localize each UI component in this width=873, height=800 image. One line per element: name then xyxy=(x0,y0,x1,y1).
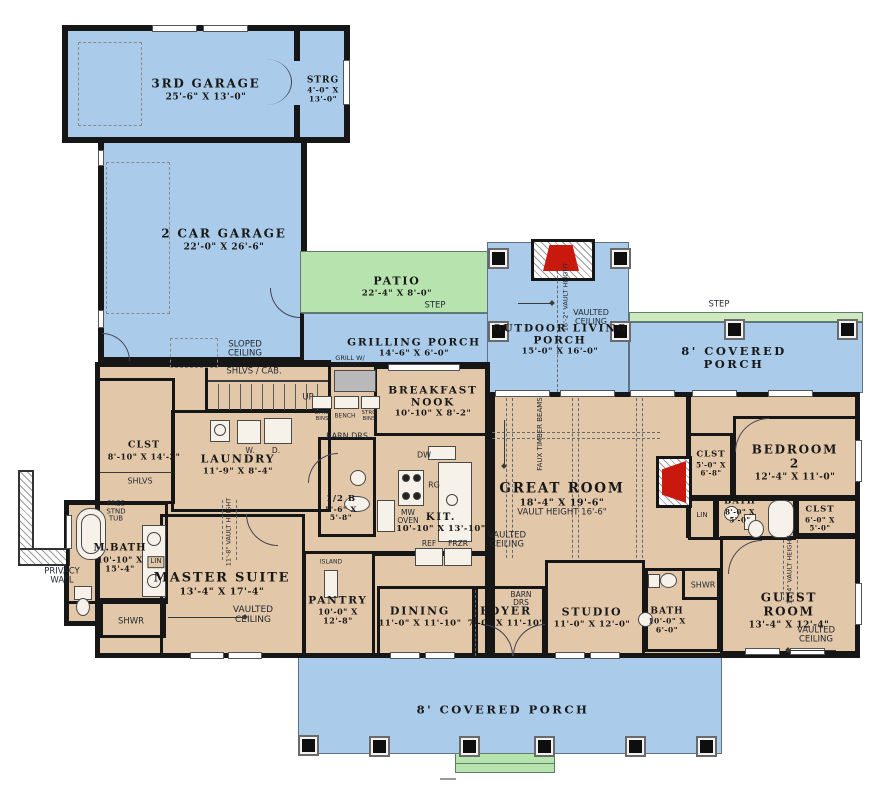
room-name: PANTRY xyxy=(308,594,367,606)
porch-column xyxy=(839,321,856,338)
attic-stair-dashes xyxy=(170,338,218,368)
room-name: PATIO xyxy=(373,275,420,288)
window xyxy=(388,364,460,371)
steps-bottom-line xyxy=(455,763,555,764)
burner xyxy=(402,474,410,482)
annotation-up: UP xyxy=(302,393,313,402)
room-name: GRILLING PORCH xyxy=(347,337,481,349)
privacy-wall-horizontal xyxy=(18,548,70,566)
window xyxy=(152,25,197,32)
porch-column xyxy=(627,738,644,755)
room-label-pantry: PANTRY 10'-0" X 12'-8" xyxy=(308,594,367,625)
porch-column xyxy=(536,738,553,755)
window xyxy=(768,390,813,397)
room-label-bedroom2-closet: CLST 5'-0" X 6'-8" xyxy=(696,451,726,478)
annotation-strg-bins: STRG BINS xyxy=(315,410,330,422)
room-label-hall-closet: CLST 6'-0" X 5'-0" xyxy=(805,506,835,533)
room-label-grilling-porch: GRILLING PORCH 14'-6" X 6'-0" xyxy=(347,337,481,360)
strg-partition-upper xyxy=(294,31,300,61)
room-name: BREAKFAST NOOK xyxy=(388,385,477,409)
room-name: LAUNDRY xyxy=(201,453,276,466)
room-label-covered-porch-right: 8' COVERED PORCH xyxy=(665,345,804,371)
annotation-barn-drs: BARN DRS xyxy=(510,591,531,608)
dishwasher xyxy=(428,446,456,460)
room-dims: 22'-0" X 26'-6" xyxy=(184,242,265,252)
porch-column xyxy=(490,250,507,267)
annotation-dryer: D. xyxy=(272,447,280,455)
storage-bin xyxy=(361,396,380,409)
porch-column xyxy=(371,738,388,755)
porch-column xyxy=(726,321,743,338)
window xyxy=(66,515,72,549)
annotation-shlvs: SHLVS xyxy=(127,478,152,487)
annotation-ref: REF xyxy=(422,540,436,548)
room-label-master-closet: CLST 8'-10" X 14'-2" xyxy=(108,440,181,461)
room-label-master-suite: MASTER SUITE 13'-4" X 17'-4" xyxy=(154,572,291,599)
room-dims: 4'-0" X 13'-0" xyxy=(307,87,339,104)
annotation-vault-height: 16'-2" VAULT HEIGHT xyxy=(562,263,569,331)
window xyxy=(745,648,780,655)
room-name: BATH xyxy=(724,498,756,508)
annotation-island: ISLAND xyxy=(320,560,342,567)
bed2-tub xyxy=(768,500,794,538)
room-dims: 5'-0" X 6'-8" xyxy=(696,461,726,477)
window xyxy=(555,652,585,659)
burner xyxy=(413,492,421,500)
master-vault-line xyxy=(222,500,223,560)
window xyxy=(630,390,675,397)
window xyxy=(390,652,420,659)
annotation-vaulted-ceiling: VAULTED CEILING xyxy=(797,627,835,646)
beam-line xyxy=(492,438,660,439)
room-dims: 11'-9" X 8'-4" xyxy=(203,467,273,477)
room-dims: 11'-0" X 11'-10" xyxy=(378,619,461,629)
beam-line xyxy=(578,398,579,558)
halfbath-sink xyxy=(350,470,366,486)
strg-partition-lower xyxy=(294,105,300,137)
room-dims: 13'-4" X 17'-4" xyxy=(180,588,265,599)
garage3-dashed-outline xyxy=(78,42,142,126)
room-name: STUDIO xyxy=(562,606,623,619)
annotation-frzr: FRZR xyxy=(448,540,468,548)
room-name: 2 CAR GARAGE xyxy=(161,227,286,241)
washer xyxy=(237,420,261,444)
beam-line xyxy=(642,398,643,558)
room-name: CLST xyxy=(805,506,834,516)
window xyxy=(343,60,350,105)
dim-line xyxy=(504,420,505,466)
room-dims: 6'-0" X 5'-0" xyxy=(805,516,835,532)
annotation-strg-bins: STRG BINS xyxy=(362,410,377,422)
floor-plan: 3RD GARAGE 25'-6" X 13'-0" STRG 4'-0" X … xyxy=(0,0,873,800)
room-dims: 11'-0" X 12'-0" xyxy=(554,620,631,630)
room-name: DINING xyxy=(390,605,450,618)
porch-column xyxy=(461,738,478,755)
annotation-mw-oven: MW OVEN xyxy=(397,509,418,526)
shlvs-cab-shelf-line xyxy=(208,380,328,382)
window xyxy=(560,390,615,397)
room-dims: 22'-4" X 8'-0" xyxy=(362,289,432,299)
room-label-foyer: FOYER 7'-0" X 11'-10" xyxy=(468,605,545,628)
room-dims: 5'-6" X 5'-8" xyxy=(325,506,357,523)
annotation-grill: GRILL W/ HOOD xyxy=(335,355,364,369)
window xyxy=(590,652,620,659)
room-label-studio: STUDIO 11'-0" X 12'-0" xyxy=(554,606,631,629)
master-vault-line xyxy=(236,500,237,560)
greatroom-east-wall-upper xyxy=(686,396,691,458)
room-label-laundry: LAUNDRY 11'-9" X 8'-4" xyxy=(201,453,276,476)
room-dims: 14'-6" X 6'-0" xyxy=(379,350,449,360)
mw-oven-stack xyxy=(377,500,395,532)
closet-shelf-line xyxy=(100,472,172,473)
annotation-step: STEP xyxy=(708,300,729,309)
room-label-3rd-garage: 3RD GARAGE 25'-6" X 13'-0" xyxy=(151,77,260,102)
refrigerator xyxy=(415,548,443,566)
room-label-outdoor-living-porch: OUTDOOR LIVING PORCH 15'-0" X 16'-0" xyxy=(492,323,627,358)
room-label-bedroom2: BEDROOM 2 12'-4" X 11'-0" xyxy=(752,444,838,483)
room-name: CLST xyxy=(128,440,160,451)
room-label-covered-porch-bottom: 8' COVERED PORCH xyxy=(417,703,590,716)
room-name: 1/2 B xyxy=(326,495,356,505)
island-sink xyxy=(446,494,458,506)
room-name: M.BATH xyxy=(93,543,146,555)
annotation-rg: RG xyxy=(428,482,440,491)
room-dims: 12'-4" X 11'-0" xyxy=(755,472,836,482)
window xyxy=(228,652,262,659)
room-label-2-car-garage: 2 CAR GARAGE 22'-0" X 26'-6" xyxy=(161,227,286,252)
annotation-dw: DW xyxy=(417,452,431,461)
annotation-shlvs-cab: SHLVS / CAB. xyxy=(226,367,281,376)
freezer xyxy=(444,548,472,566)
room-dims: 10'-0" X 6'-0" xyxy=(648,618,685,635)
laundry-sink xyxy=(214,424,226,436)
window xyxy=(425,652,455,659)
burner xyxy=(402,492,410,500)
mbath-sink xyxy=(147,532,161,546)
window xyxy=(203,25,248,32)
bench xyxy=(334,396,359,409)
greatroom-east-wall-lower xyxy=(686,508,691,538)
room-label-patio: PATIO 22'-4" X 8'-0" xyxy=(362,275,432,298)
annotation-privacy-wall: PRIVACY WALL xyxy=(44,568,79,587)
room-note: VAULT HEIGHT 16'-6" xyxy=(517,509,606,518)
porch-column xyxy=(698,738,715,755)
annotation-vault-height: 11'-4" VAULT HEIGHT xyxy=(786,536,793,604)
room-dims: 15'-0" X 16'-0" xyxy=(522,348,599,358)
annotation-shwr: SHWR xyxy=(118,617,144,626)
dim-line xyxy=(790,650,836,651)
room-label-dining: DINING 11'-0" X 11'-10" xyxy=(378,605,461,628)
room-label-strg: STRG 4'-0" X 13'-0" xyxy=(307,76,339,105)
room-dims: 25'-6" X 13'-0" xyxy=(166,92,247,102)
room-name: STRG xyxy=(307,76,339,86)
porch-column xyxy=(300,737,317,754)
step-strip-right xyxy=(629,312,863,322)
annotation-vaulted-ceiling: VAULTED CEILING xyxy=(488,532,526,551)
room-dims: 10'-10" X 15'-4" xyxy=(97,555,143,573)
porch-column xyxy=(612,250,629,267)
window xyxy=(855,583,862,625)
annotation-bench: BENCH xyxy=(334,414,355,421)
storage-bin xyxy=(312,396,332,409)
beam-line xyxy=(492,432,660,433)
annotation-step: STEP xyxy=(424,301,445,310)
annotation-faux-timber-beams: FAUX TIMBER BEAMS xyxy=(537,397,545,471)
dryer xyxy=(264,418,292,444)
room-label-mbath: M.BATH 10'-10" X 15'-4" xyxy=(93,543,146,574)
annotation-shwr: SHWR xyxy=(691,582,716,591)
room-name: CLST xyxy=(696,451,725,461)
beam-line xyxy=(636,398,637,558)
room-name: 8' COVERED PORCH xyxy=(665,345,804,371)
room-dims: 10'-0" X 12'-8" xyxy=(318,607,358,625)
annotation-free-stnd-tub: FREE STND TUB xyxy=(106,500,125,523)
dim-line xyxy=(168,617,242,618)
room-dims: 8'-10" X 14'-2" xyxy=(108,452,181,461)
studio-toilet xyxy=(660,573,677,588)
room-dims: 10'-10" X 8'-2" xyxy=(395,410,472,420)
room-label-studio-bath: BATH 10'-0" X 6'-0" xyxy=(648,607,685,636)
room-dims: 8'-0" X 5'-0" xyxy=(725,508,755,524)
annotation-vaulted-ceiling: VAULTED CEILING xyxy=(573,309,609,327)
window xyxy=(190,652,224,659)
annotation-washer: W. xyxy=(246,447,255,455)
dim-line xyxy=(518,303,552,304)
studio-toilet-tank xyxy=(648,574,660,588)
room-name: BEDROOM 2 xyxy=(752,444,838,472)
annotation-vaulted-ceiling: VAULTED CEILING xyxy=(233,606,273,626)
window xyxy=(692,390,737,397)
scale-mark xyxy=(440,778,456,780)
annotation-lin: LIN xyxy=(147,556,164,568)
room-label-great-room: GREAT ROOM 18'-4" X 19'-6" VAULT HEIGHT … xyxy=(499,482,624,519)
grill xyxy=(334,370,376,392)
mbath-toilet xyxy=(76,598,90,616)
beam-line xyxy=(572,398,573,558)
room-name: MASTER SUITE xyxy=(154,572,291,587)
room-dims: 7'-0" X 11'-10" xyxy=(468,619,545,629)
annotation-lin: LIN xyxy=(696,512,707,520)
annotation-sloped-ceiling: SLOPED CEILING xyxy=(228,341,262,360)
room-name: 3RD GARAGE xyxy=(151,77,260,91)
room-name: KIT. xyxy=(426,512,456,524)
window xyxy=(98,150,104,166)
room-name: GREAT ROOM xyxy=(499,482,624,498)
window xyxy=(98,310,104,328)
room-label-breakfast-nook: BREAKFAST NOOK 10'-10" X 8'-2" xyxy=(388,385,477,420)
window xyxy=(855,440,862,482)
room-label-bedroom2-bath: BATH 8'-0" X 5'-0" xyxy=(724,498,756,525)
annotation-vault-height: 11'-8" VAULT HEIGHT xyxy=(225,498,232,566)
annotation-barn-drs: BARN DRS xyxy=(326,433,368,442)
room-name: 8' COVERED PORCH xyxy=(417,703,590,716)
room-dims: 10'-10" X 13'-10" xyxy=(396,524,485,534)
burner xyxy=(413,474,421,482)
room-label-half-bath: 1/2 B 5'-6" X 5'-8" xyxy=(325,495,357,523)
room-name: BATH xyxy=(650,607,683,617)
